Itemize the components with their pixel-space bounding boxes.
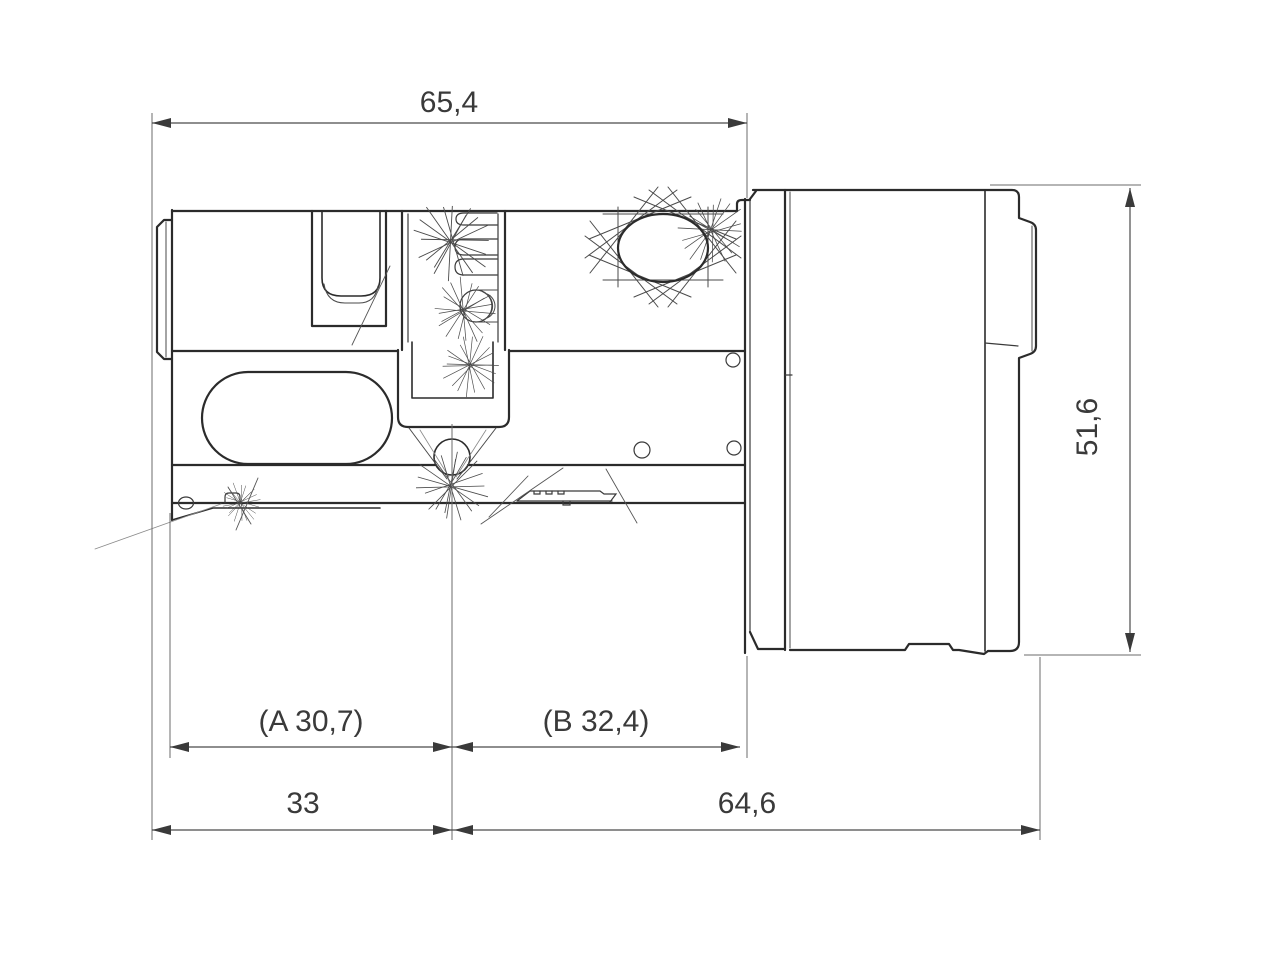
locking-cylinder-drawing: 65,4 (A 30,7) (B 32,4) 33 64,6 bbox=[0, 0, 1280, 960]
dimension-knob-height: 51,6 bbox=[1071, 188, 1135, 652]
plug-face-cap bbox=[157, 220, 172, 359]
dim-label-knob-height: 51,6 bbox=[1071, 398, 1104, 456]
electronic-knob bbox=[750, 190, 1036, 654]
dim-label-a: (A 30,7) bbox=[258, 705, 363, 738]
dim-label-bottom-right: 64,6 bbox=[718, 787, 776, 820]
dimension-overall-top: 65,4 bbox=[152, 86, 747, 128]
knob-bottom-notch bbox=[790, 644, 988, 654]
technical-drawing-page: 65,4 (A 30,7) (B 32,4) 33 64,6 bbox=[0, 0, 1280, 960]
flange-hole-bottom bbox=[727, 441, 741, 455]
knob-outline bbox=[753, 190, 1036, 651]
flange bbox=[726, 199, 750, 653]
cam-clutch bbox=[398, 211, 637, 524]
flange-hole-top bbox=[726, 353, 740, 367]
keyway-slot bbox=[312, 211, 390, 345]
stadium-cutout bbox=[202, 372, 392, 464]
dim-label-overall-top: 65,4 bbox=[420, 86, 478, 119]
spline-opening bbox=[585, 187, 741, 307]
dimension-a-b: (A 30,7) (B 32,4) bbox=[170, 705, 740, 752]
dim-label-bottom-left: 33 bbox=[286, 787, 319, 820]
round-hole bbox=[634, 442, 650, 458]
dim-label-b: (B 32,4) bbox=[543, 705, 650, 738]
dimension-bottom: 33 64,6 bbox=[152, 787, 1040, 835]
serrated-rail bbox=[481, 468, 637, 524]
cylinder-body bbox=[95, 200, 750, 549]
